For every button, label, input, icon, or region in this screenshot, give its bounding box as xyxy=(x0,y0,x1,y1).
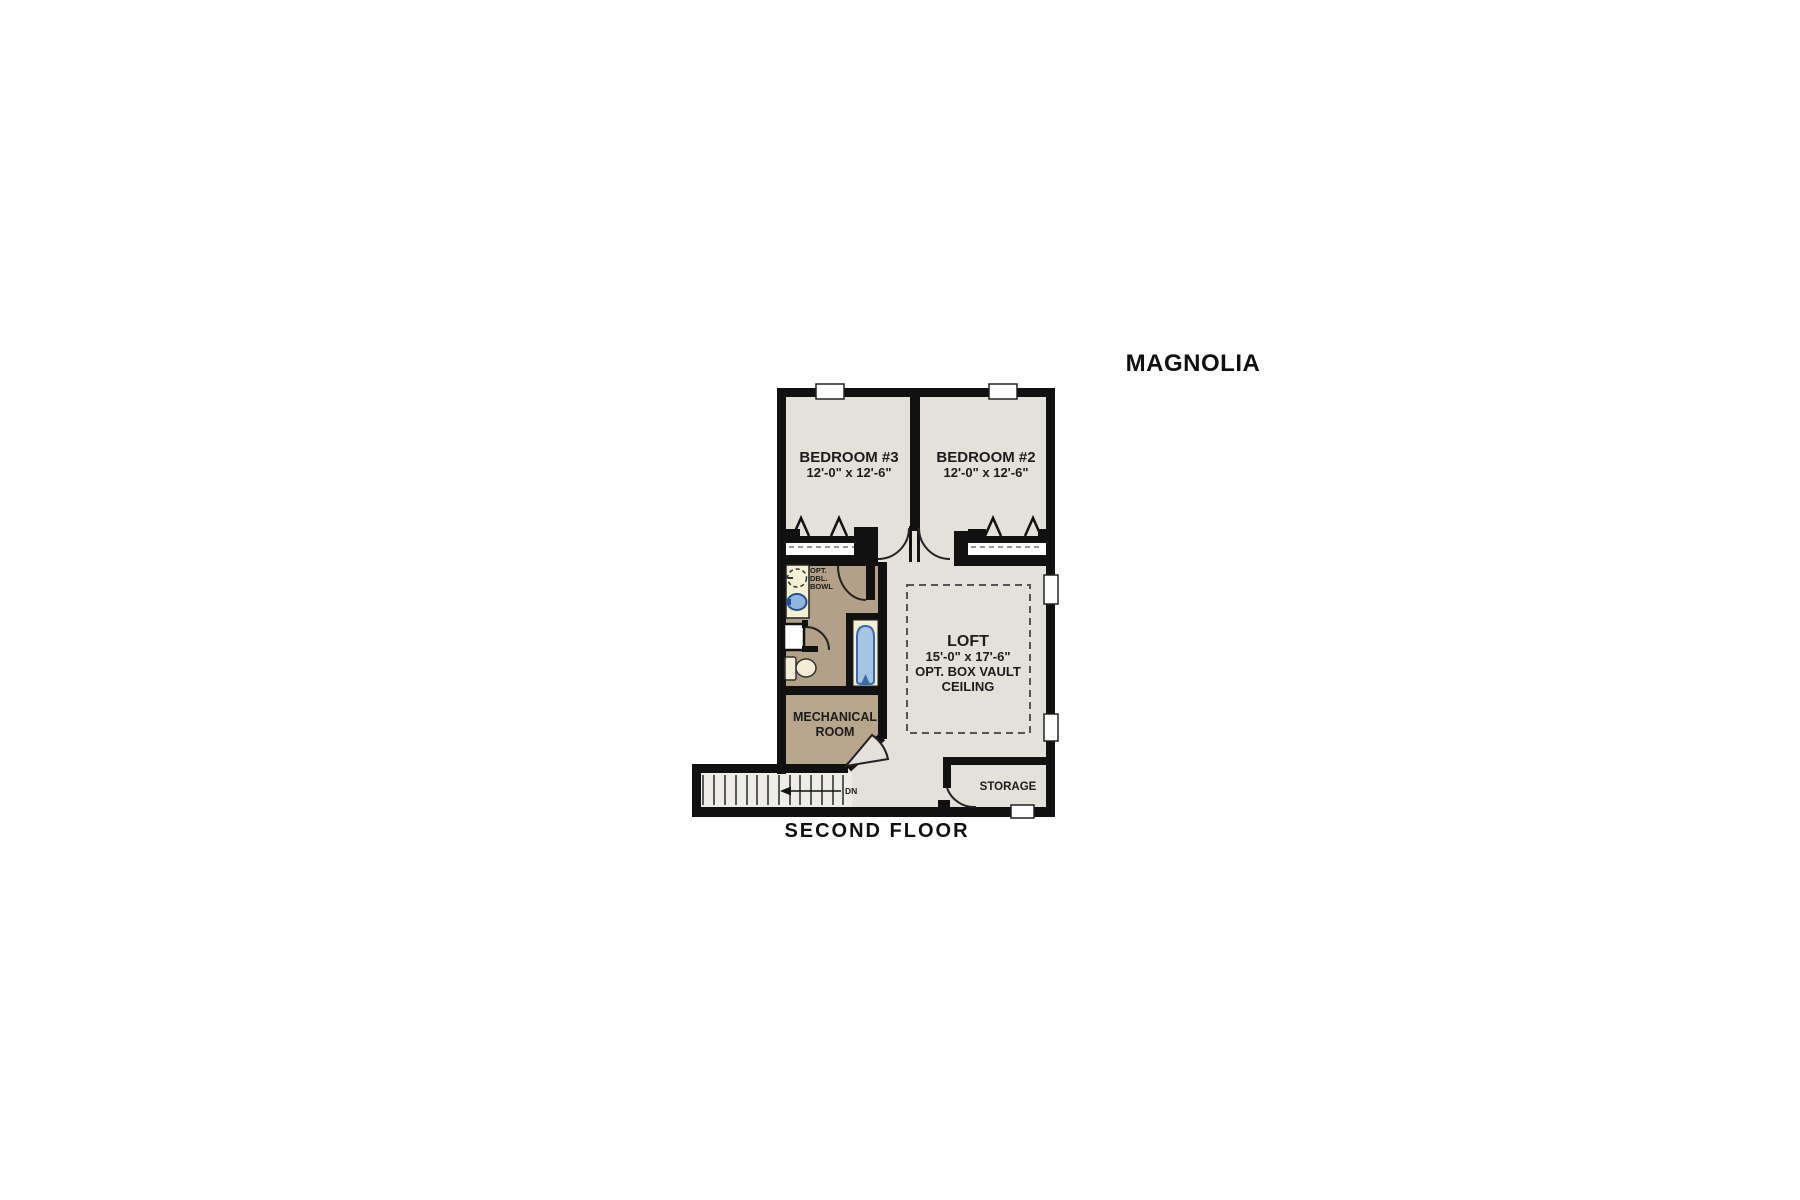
stair-wall-top xyxy=(692,764,848,773)
closet3-shelf xyxy=(786,543,858,555)
closet3-front-wall xyxy=(786,536,858,543)
bedroom2-window-icon xyxy=(989,384,1017,399)
floorplan-drawing: DN xyxy=(0,0,1800,1200)
sink-faucet-icon xyxy=(786,599,791,605)
linen-door-jamb xyxy=(802,646,818,652)
loft-note-line1: OPT. BOX VAULT xyxy=(915,664,1021,679)
hall-wall-right xyxy=(968,555,1046,566)
storage-left-wall xyxy=(943,757,951,788)
bedroom2-label: BEDROOM #2 xyxy=(936,449,1035,466)
bedroom2-dims: 12'-0" x 12'-6" xyxy=(943,465,1028,480)
closet2-front-wall xyxy=(968,536,1046,543)
loft-window-upper-icon xyxy=(1044,575,1058,604)
floorplan-page: MAGNOLIA DN xyxy=(0,0,1800,1200)
closet2-shelf xyxy=(968,543,1046,555)
floor-label: SECOND FLOOR xyxy=(784,820,969,843)
bedroom3-window-icon xyxy=(816,384,844,399)
linen-closet xyxy=(784,624,804,650)
storage-door-stub xyxy=(938,800,950,808)
stair-down-label: DN xyxy=(845,786,857,796)
exterior-wall-left xyxy=(777,388,786,774)
door3-jamb-block xyxy=(854,527,878,566)
loft-label: LOFT xyxy=(947,633,989,650)
tub-left-wall xyxy=(846,613,853,688)
bedroom3-label: BEDROOM #3 xyxy=(799,449,898,466)
opt-dbl-bowl-line3: BOWL xyxy=(810,582,833,591)
stair-floor xyxy=(701,773,852,807)
storage-label: STORAGE xyxy=(980,781,1037,793)
toilet-tank-icon xyxy=(785,657,796,680)
door2-jamb-block xyxy=(954,531,970,566)
exterior-wall-bottom xyxy=(692,807,1055,817)
bedroom3-dims: 12'-0" x 12'-6" xyxy=(806,465,891,480)
staircase: DN xyxy=(701,773,857,807)
bathroom-right-wall xyxy=(878,562,887,739)
bathroom-bottom-wall xyxy=(786,686,887,695)
bedroom-divider-wall xyxy=(910,388,920,531)
loft-dims: 15'-0" x 17'-6" xyxy=(925,649,1010,664)
toilet-bowl-icon xyxy=(796,659,816,677)
storage-top-wall xyxy=(943,757,1046,765)
mechanical-room-label-line1: MECHANICAL xyxy=(793,710,877,724)
bathroom-door-leaf xyxy=(866,566,875,600)
loft-window-lower-icon xyxy=(1044,714,1058,741)
mechanical-room-label-line2: ROOM xyxy=(816,725,855,739)
loft-note-line2: CEILING xyxy=(942,679,995,694)
storage-window-icon xyxy=(1011,805,1034,818)
